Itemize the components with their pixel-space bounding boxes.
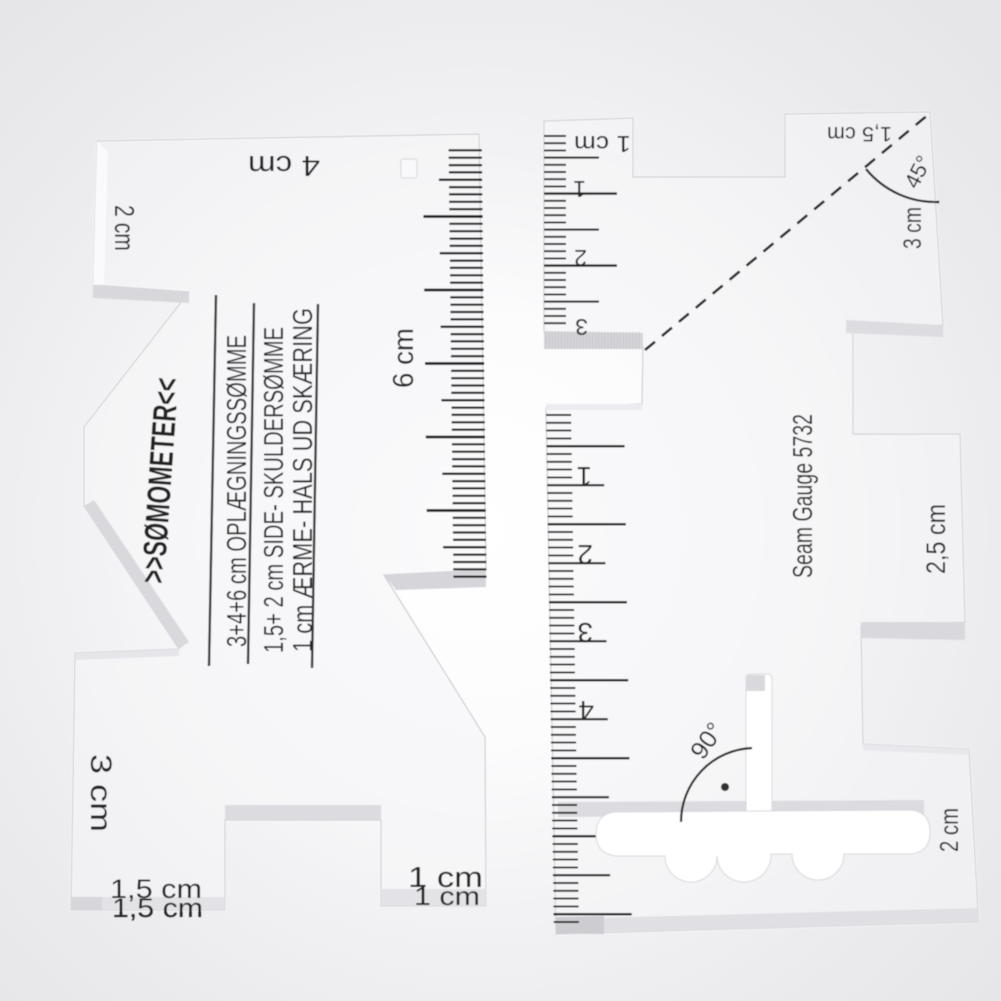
svg-text:6 cm: 6 cm [388,328,420,388]
svg-text:4: 4 [578,695,594,726]
svg-text:1,5 cm: 1,5 cm [827,122,892,145]
svg-text:3 cm: 3 cm [84,754,117,832]
svg-text:1 cm ÆRME- HALS UD SKÆRING: 1 cm ÆRME- HALS UD SKÆRING [287,308,318,652]
svg-text:2 cm: 2 cm [934,808,964,852]
svg-text:1,5+ 2 cm SIDE- SKULDERSØMME: 1,5+ 2 cm SIDE- SKULDERSØMME [258,327,289,653]
svg-text:2: 2 [574,245,587,271]
svg-text:1 cm: 1 cm [414,881,480,911]
svg-text:2: 2 [577,539,593,570]
svg-text:2,5 cm: 2,5 cm [921,504,951,574]
svg-text:1,5 cm: 1,5 cm [112,893,203,923]
svg-text:1 cm: 1 cm [574,131,631,157]
svg-text:3: 3 [575,314,588,340]
svg-text:3 cm: 3 cm [899,207,927,249]
svg-text:2 cm: 2 cm [109,205,140,251]
svg-text:1: 1 [573,176,586,202]
svg-text:3: 3 [577,617,593,648]
svg-text:Seam Gauge 5732: Seam Gauge 5732 [787,414,818,578]
svg-text:4 cm: 4 cm [248,149,320,181]
svg-text:1: 1 [576,461,592,492]
svg-text:3+4+6 cm OPLÆGNINGSSØMME: 3+4+6 cm OPLÆGNINGSSØMME [221,335,252,647]
